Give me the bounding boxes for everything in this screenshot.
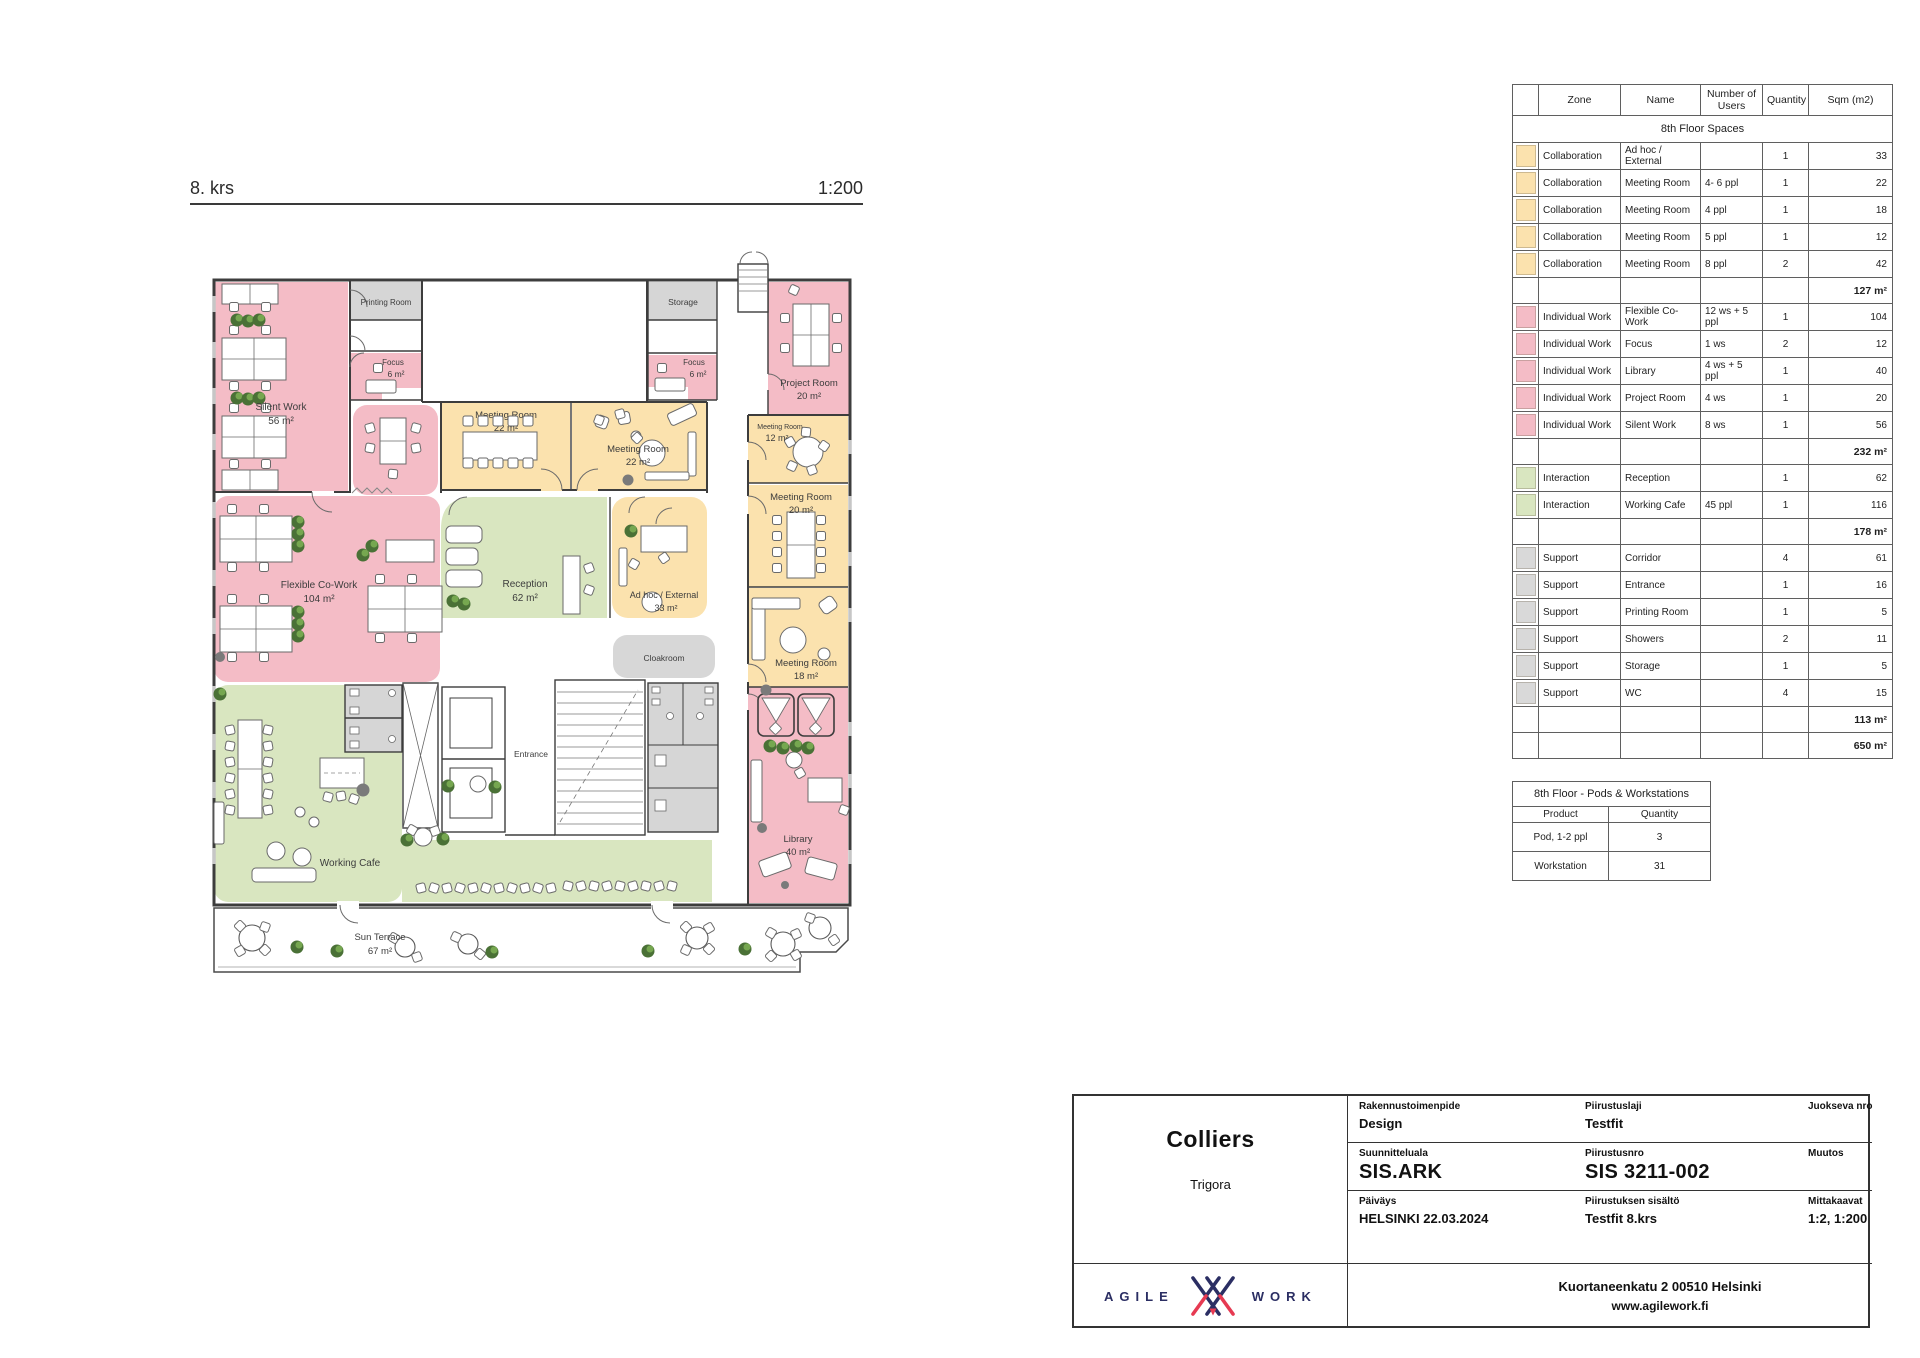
label-focus-right: Focus bbox=[683, 358, 705, 367]
table-subtotal-row: 178 m² bbox=[1513, 519, 1893, 545]
address-cell: Kuortaneenkatu 2 00510 Helsinki www.agil… bbox=[1348, 1264, 1872, 1328]
label-meeting-room-18: Meeting Room bbox=[775, 658, 837, 669]
field-piirustuksen-sisalto: Piirustuksen sisältö Testfit 8.krs bbox=[1574, 1191, 1797, 1263]
interaction-swatch bbox=[1516, 467, 1536, 489]
scale-label: 1:200 bbox=[818, 178, 863, 199]
label-sun-terrace: Sun Terrace bbox=[354, 932, 405, 943]
table-subtotal-row: 113 m² bbox=[1513, 707, 1893, 733]
table-row: CollaborationMeeting Room5 ppl112 bbox=[1513, 224, 1893, 251]
svg-text:104 m²: 104 m² bbox=[303, 594, 335, 605]
individual_work-swatch bbox=[1516, 333, 1536, 355]
table-row: CollaborationAd hoc / External133 bbox=[1513, 143, 1893, 170]
col-sqm: Sqm (m2) bbox=[1809, 85, 1893, 116]
company-cell: Colliers Trigora bbox=[1074, 1096, 1348, 1263]
pods-table-row: Pod, 1-2 ppl3 bbox=[1513, 823, 1711, 852]
drawing-sheet: 8. krs 1:200 bbox=[0, 0, 1920, 1358]
table-row: InteractionReception162 bbox=[1513, 465, 1893, 492]
brand-word-work: WORK bbox=[1252, 1289, 1317, 1304]
project-name: Trigora bbox=[1074, 1177, 1347, 1192]
table-row: InteractionWorking Cafe45 ppl1116 bbox=[1513, 492, 1893, 519]
col-users: Number of Users bbox=[1701, 85, 1763, 116]
label-focus-left: Focus bbox=[382, 358, 404, 367]
floor-plan: Silent Work 56 m² Flexible Co-Work 104 m… bbox=[200, 250, 870, 980]
table-total-row: 650 m² bbox=[1513, 733, 1893, 759]
svg-text:56 m²: 56 m² bbox=[268, 416, 294, 427]
interaction-swatch bbox=[1516, 494, 1536, 516]
label-cloakroom: Cloakroom bbox=[643, 653, 684, 663]
table-row: SupportPrinting Room15 bbox=[1513, 599, 1893, 626]
col-name: Name bbox=[1621, 85, 1701, 116]
table-row: Individual WorkLibrary4 ws + 5 ppl140 bbox=[1513, 358, 1893, 385]
table-subtotal-row: 232 m² bbox=[1513, 439, 1893, 465]
svg-text:22 m²: 22 m² bbox=[626, 457, 650, 468]
support-swatch bbox=[1516, 655, 1536, 677]
sun-terrace bbox=[214, 908, 848, 972]
label-meeting-room-20: Meeting Room bbox=[770, 492, 832, 503]
label-library: Library bbox=[783, 834, 812, 845]
label-storage: Storage bbox=[668, 297, 698, 307]
svg-text:33 m²: 33 m² bbox=[654, 603, 677, 613]
table-row: SupportStorage15 bbox=[1513, 653, 1893, 680]
plan-header: 8. krs 1:200 bbox=[190, 178, 863, 205]
svg-text:20 m²: 20 m² bbox=[797, 391, 821, 402]
col-pods-quantity: Quantity bbox=[1609, 807, 1711, 823]
table-subtotal-row: 127 m² bbox=[1513, 278, 1893, 304]
company-address: Kuortaneenkatu 2 00510 Helsinki bbox=[1558, 1279, 1761, 1294]
table-row: Individual WorkFocus1 ws212 bbox=[1513, 331, 1893, 358]
field-suunnitteluala: Suunnitteluala SIS.ARK bbox=[1348, 1143, 1574, 1191]
pods-table: 8th Floor - Pods & Workstations Product … bbox=[1512, 781, 1711, 881]
spaces-table-header: Zone Name Number of Users Quantity Sqm (… bbox=[1513, 85, 1893, 116]
collaboration-swatch bbox=[1516, 199, 1536, 221]
svg-text:12 m²: 12 m² bbox=[765, 433, 788, 443]
support-swatch bbox=[1516, 547, 1536, 569]
svg-text:67 m²: 67 m² bbox=[368, 946, 392, 957]
individual_work-swatch bbox=[1516, 360, 1536, 382]
spaces-table: 8th Floor Spaces Zone Name Number of Use… bbox=[1512, 84, 1893, 759]
spaces-table-title: 8th Floor Spaces bbox=[1513, 116, 1893, 143]
collaboration-swatch bbox=[1516, 172, 1536, 194]
agile-work-logo: AGILE WORK bbox=[1074, 1264, 1348, 1328]
svg-text:20 m²: 20 m² bbox=[789, 505, 813, 516]
label-meeting-room-b: Meeting Room bbox=[607, 444, 669, 455]
company-name: Colliers bbox=[1074, 1126, 1347, 1153]
label-printing-room: Printing Room bbox=[361, 298, 412, 307]
company-website: www.agilework.fi bbox=[1612, 1299, 1709, 1313]
floor-label: 8. krs bbox=[190, 178, 234, 199]
field-muutos: Muutos bbox=[1797, 1143, 1872, 1191]
title-block: Colliers Trigora Rakennustoimenpide Desi… bbox=[1072, 1094, 1870, 1328]
pods-table-row: Workstation31 bbox=[1513, 852, 1711, 881]
table-row: Individual WorkSilent Work8 ws156 bbox=[1513, 412, 1893, 439]
collaboration-swatch bbox=[1516, 226, 1536, 248]
title-block-grid: Rakennustoimenpide Design Piirustuslaji … bbox=[1348, 1096, 1872, 1263]
label-flexible-cowork: Flexible Co-Work bbox=[281, 580, 358, 591]
individual_work-swatch bbox=[1516, 306, 1536, 328]
table-row: Individual WorkFlexible Co-Work12 ws + 5… bbox=[1513, 304, 1893, 331]
brand-word-agile: AGILE bbox=[1104, 1289, 1174, 1304]
svg-text:40 m²: 40 m² bbox=[786, 847, 810, 858]
pods-table-title: 8th Floor - Pods & Workstations bbox=[1513, 782, 1711, 807]
pods-table-header: Product Quantity bbox=[1513, 807, 1711, 823]
field-juokseva-nro: Juokseva nro bbox=[1797, 1096, 1872, 1143]
label-working-cafe: Working Cafe bbox=[320, 858, 381, 869]
field-paivays: Päiväys HELSINKI 22.03.2024 bbox=[1348, 1191, 1574, 1263]
table-row: CollaborationMeeting Room4- 6 ppl122 bbox=[1513, 170, 1893, 197]
collaboration-swatch bbox=[1516, 253, 1536, 275]
agile-work-mark-icon bbox=[1183, 1274, 1243, 1318]
table-row: CollaborationMeeting Room4 ppl118 bbox=[1513, 197, 1893, 224]
table-row: Individual WorkProject Room4 ws120 bbox=[1513, 385, 1893, 412]
field-mittakaavat: Mittakaavat 1:2, 1:200 bbox=[1797, 1191, 1872, 1263]
support-swatch bbox=[1516, 682, 1536, 704]
label-ad-hoc: Ad hoc / External bbox=[630, 590, 699, 600]
field-piirustuslaji: Piirustuslaji Testfit bbox=[1574, 1096, 1797, 1143]
support-swatch bbox=[1516, 574, 1536, 596]
svg-text:6 m²: 6 m² bbox=[690, 369, 707, 379]
title-block-footer: AGILE WORK Kuortaneenkatu 2 00510 Helsin… bbox=[1074, 1263, 1872, 1328]
field-piirustusnro: Piirustusnro SIS 3211-002 bbox=[1574, 1143, 1797, 1191]
label-project-room: Project Room bbox=[780, 378, 838, 389]
field-rakennustoimenpide: Rakennustoimenpide Design bbox=[1348, 1096, 1574, 1143]
label-entrance: Entrance bbox=[514, 749, 548, 759]
table-row: SupportWC415 bbox=[1513, 680, 1893, 707]
individual_work-swatch bbox=[1516, 387, 1536, 409]
col-product: Product bbox=[1513, 807, 1609, 823]
table-row: CollaborationMeeting Room8 ppl242 bbox=[1513, 251, 1893, 278]
col-zone: Zone bbox=[1539, 85, 1621, 116]
support-swatch bbox=[1516, 628, 1536, 650]
svg-text:18 m²: 18 m² bbox=[794, 671, 818, 682]
svg-text:6 m²: 6 m² bbox=[388, 369, 405, 379]
col-quantity: Quantity bbox=[1763, 85, 1809, 116]
support-swatch bbox=[1516, 601, 1536, 623]
collaboration-swatch bbox=[1516, 145, 1536, 167]
table-row: SupportShowers211 bbox=[1513, 626, 1893, 653]
table-row: SupportEntrance116 bbox=[1513, 572, 1893, 599]
table-row: SupportCorridor461 bbox=[1513, 545, 1893, 572]
label-reception: Reception bbox=[502, 579, 547, 590]
svg-text:62 m²: 62 m² bbox=[512, 593, 538, 604]
individual_work-swatch bbox=[1516, 414, 1536, 436]
label-silent-work: Silent Work bbox=[256, 402, 308, 413]
label-meeting-room-12: Meeting Room bbox=[757, 424, 803, 431]
